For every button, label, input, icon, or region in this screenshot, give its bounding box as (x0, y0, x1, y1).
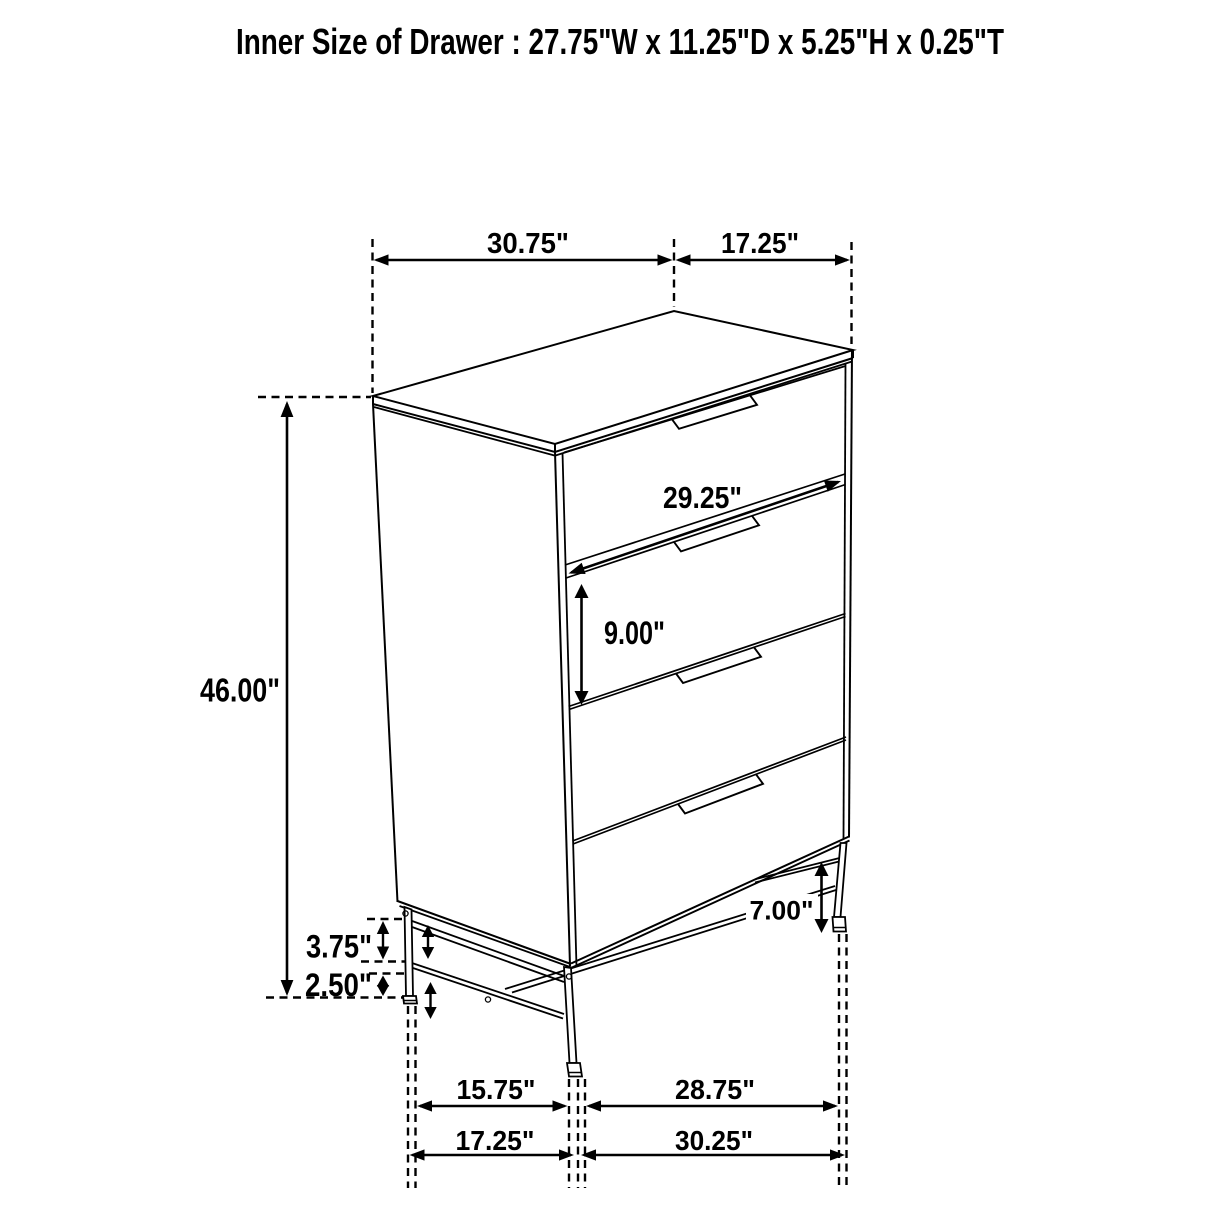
svg-text:Inner Size of Drawer : 27.75"W: Inner Size of Drawer : 27.75"W x 11.25"D… (236, 21, 1004, 62)
svg-text:30.25": 30.25" (675, 1125, 753, 1156)
svg-text:7.00": 7.00" (750, 896, 814, 926)
svg-text:29.25": 29.25" (663, 480, 742, 515)
svg-text:28.75": 28.75" (675, 1074, 755, 1105)
svg-text:17.25": 17.25" (721, 228, 799, 260)
svg-text:2.50": 2.50" (305, 967, 372, 1003)
svg-text:3.75": 3.75" (306, 929, 372, 965)
svg-text:15.75": 15.75" (457, 1074, 536, 1105)
svg-text:9.00": 9.00" (604, 615, 665, 651)
svg-text:30.75": 30.75" (487, 228, 569, 260)
svg-text:17.25": 17.25" (456, 1125, 535, 1156)
svg-text:46.00": 46.00" (200, 672, 280, 709)
